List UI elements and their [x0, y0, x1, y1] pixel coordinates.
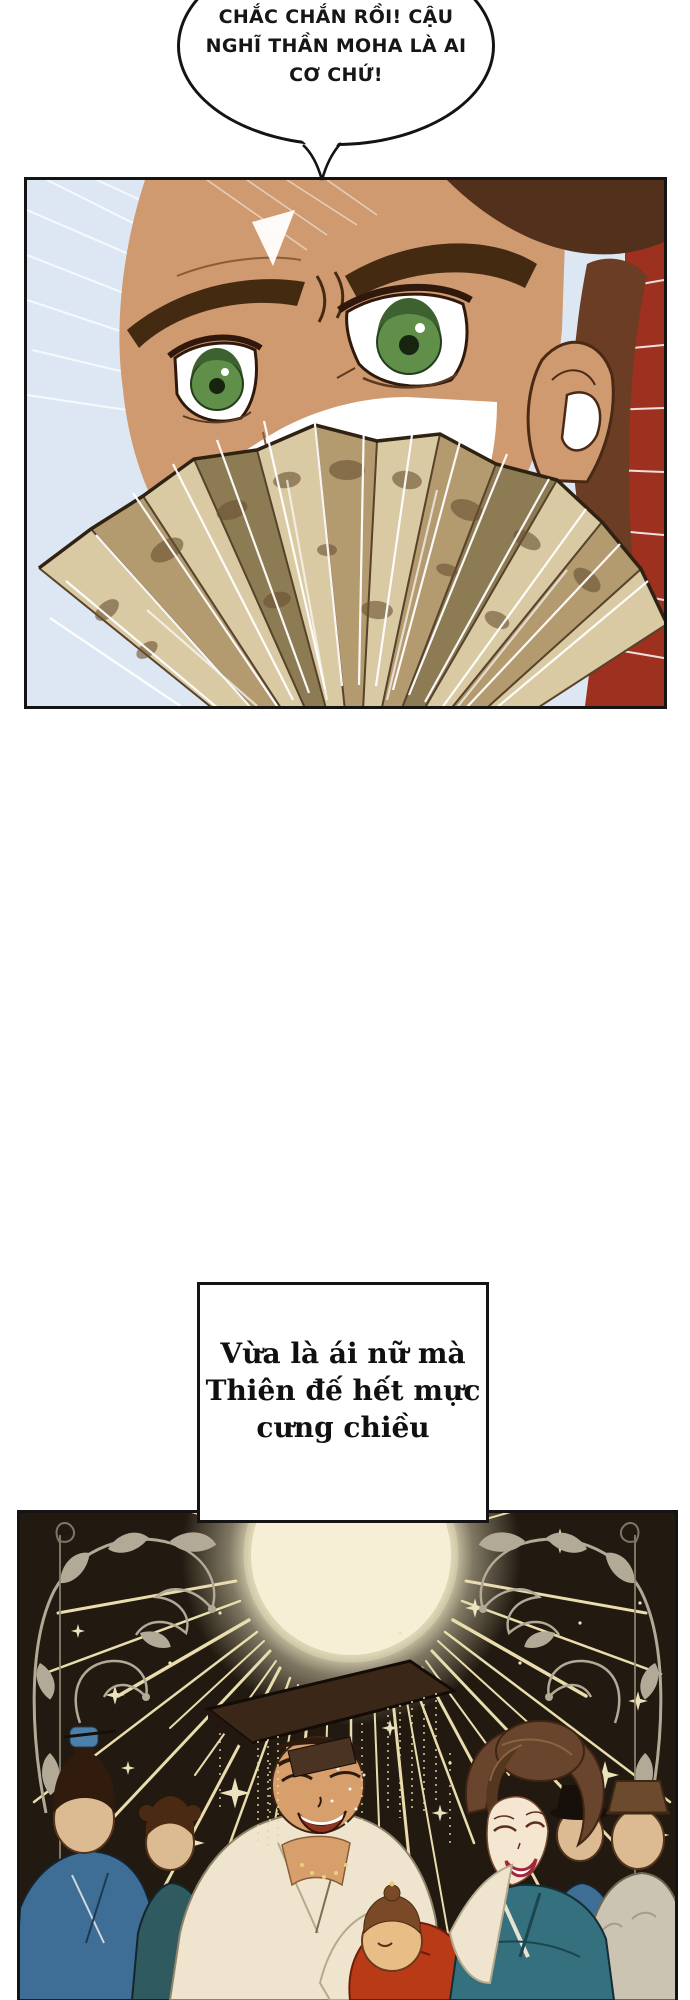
earring [562, 392, 600, 450]
speech-line-3: CƠ CHỨ! [167, 61, 505, 90]
speech-bubble-text: CHẮC CHẮN RỒI! CẬU NGHĨ THẦN MOHA LÀ AI … [167, 3, 505, 90]
speech-bubble-tail [300, 136, 348, 182]
panel-celebration [17, 1510, 678, 2000]
narration-line-1: Vừa là ái nữ mà [206, 1335, 481, 1372]
comic-page: CHẮC CHẮN RỒI! CẬU NGHĨ THẦN MOHA LÀ AI … [0, 0, 690, 2000]
narration-box: Vừa là ái nữ mà Thiên đế hết mực cưng ch… [197, 1282, 489, 1523]
narration-line-3: cưng chiều [206, 1409, 481, 1446]
panel1-artwork [27, 180, 664, 706]
panel2-artwork [20, 1513, 675, 2000]
panel-face-fan [24, 177, 667, 709]
speech-line-2: NGHĨ THẦN MOHA LÀ AI [167, 32, 505, 61]
narration-line-2: Thiên đế hết mực [206, 1372, 481, 1409]
speech-line-1: CHẮC CHẮN RỒI! CẬU [167, 3, 505, 32]
narration-text: Vừa là ái nữ mà Thiên đế hết mực cưng ch… [206, 1335, 481, 1446]
